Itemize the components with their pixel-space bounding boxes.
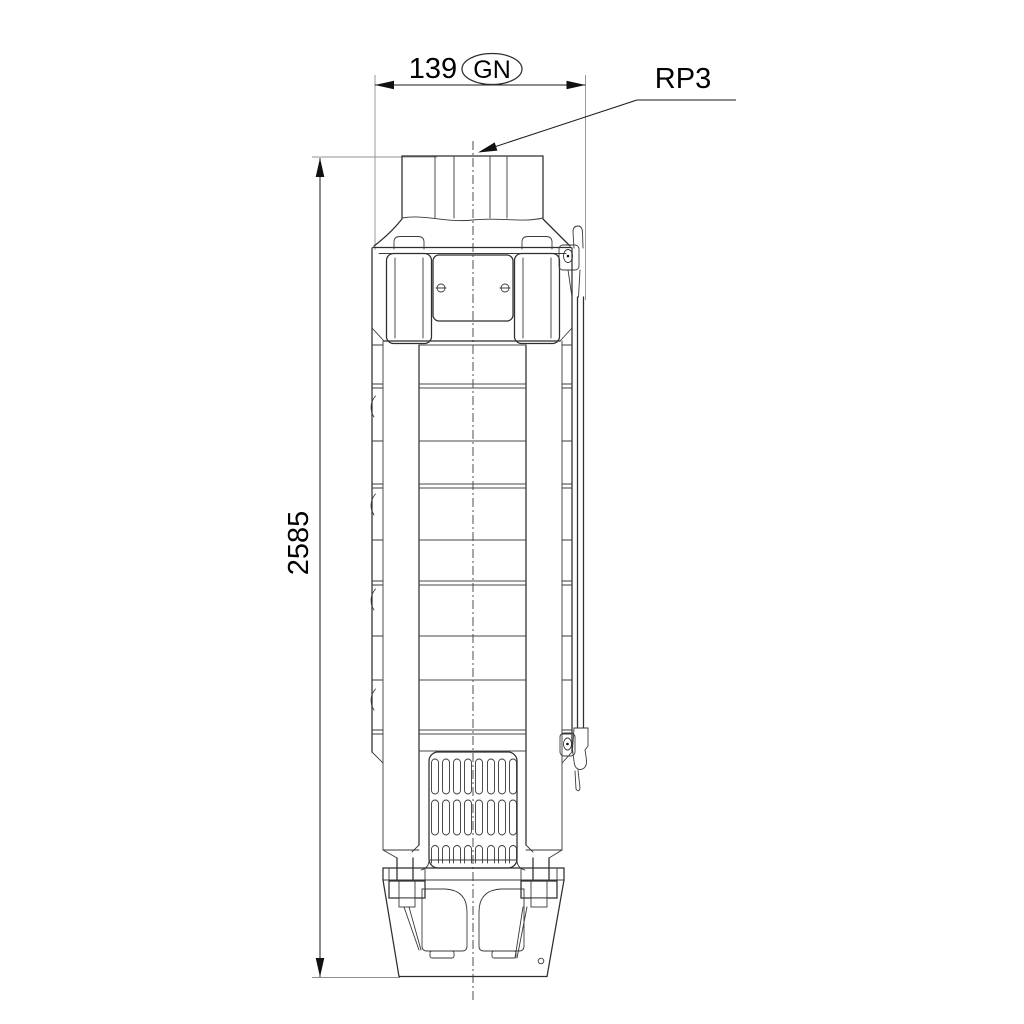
height-dimension-value: 2585	[283, 511, 315, 576]
drawing-canvas: 139 GN 2585 RP3	[0, 0, 1024, 1024]
discharge-head	[372, 237, 572, 344]
pump-top-connection	[374, 156, 570, 246]
dimension-arrowhead-bottom	[316, 958, 325, 977]
bracket-foot-right	[492, 951, 516, 958]
dimension-arrowhead-top	[316, 158, 325, 177]
bracket-foot-left	[430, 951, 454, 958]
cable-guard-strip	[559, 226, 588, 791]
pump-technical-drawing: 139 GN 2585 RP3	[0, 0, 1024, 1024]
dimension-arrowhead-left	[375, 81, 394, 90]
width-dimension: 139 GN	[375, 53, 586, 300]
suction-strainer	[372, 752, 572, 870]
shoulder-flare-left	[374, 219, 402, 246]
strainer-slots	[432, 759, 517, 863]
motor-studs	[383, 845, 562, 907]
shoulder-flare-right	[543, 219, 570, 246]
cable-clamp-left	[387, 254, 432, 344]
cable-clamp-right	[515, 254, 560, 344]
thread-leader: RP3	[478, 63, 736, 153]
bracket-window-left	[422, 889, 467, 951]
cable-guard-bottom-clamp	[560, 728, 588, 791]
leader-arrowhead	[478, 142, 497, 152]
height-dimension: 2585	[283, 157, 437, 978]
hex-nut-left	[389, 881, 425, 907]
cable-guard-top-clamp	[559, 245, 579, 270]
dimension-arrowhead-right	[567, 81, 586, 90]
hex-nut-right	[521, 881, 557, 907]
pump-stage-body	[371, 248, 572, 850]
leader-line	[482, 100, 736, 151]
drain-hole	[538, 958, 544, 964]
port-code-badge: GN	[473, 56, 511, 84]
width-dimension-value: 139	[409, 53, 457, 85]
thread-label: RP3	[655, 63, 711, 95]
